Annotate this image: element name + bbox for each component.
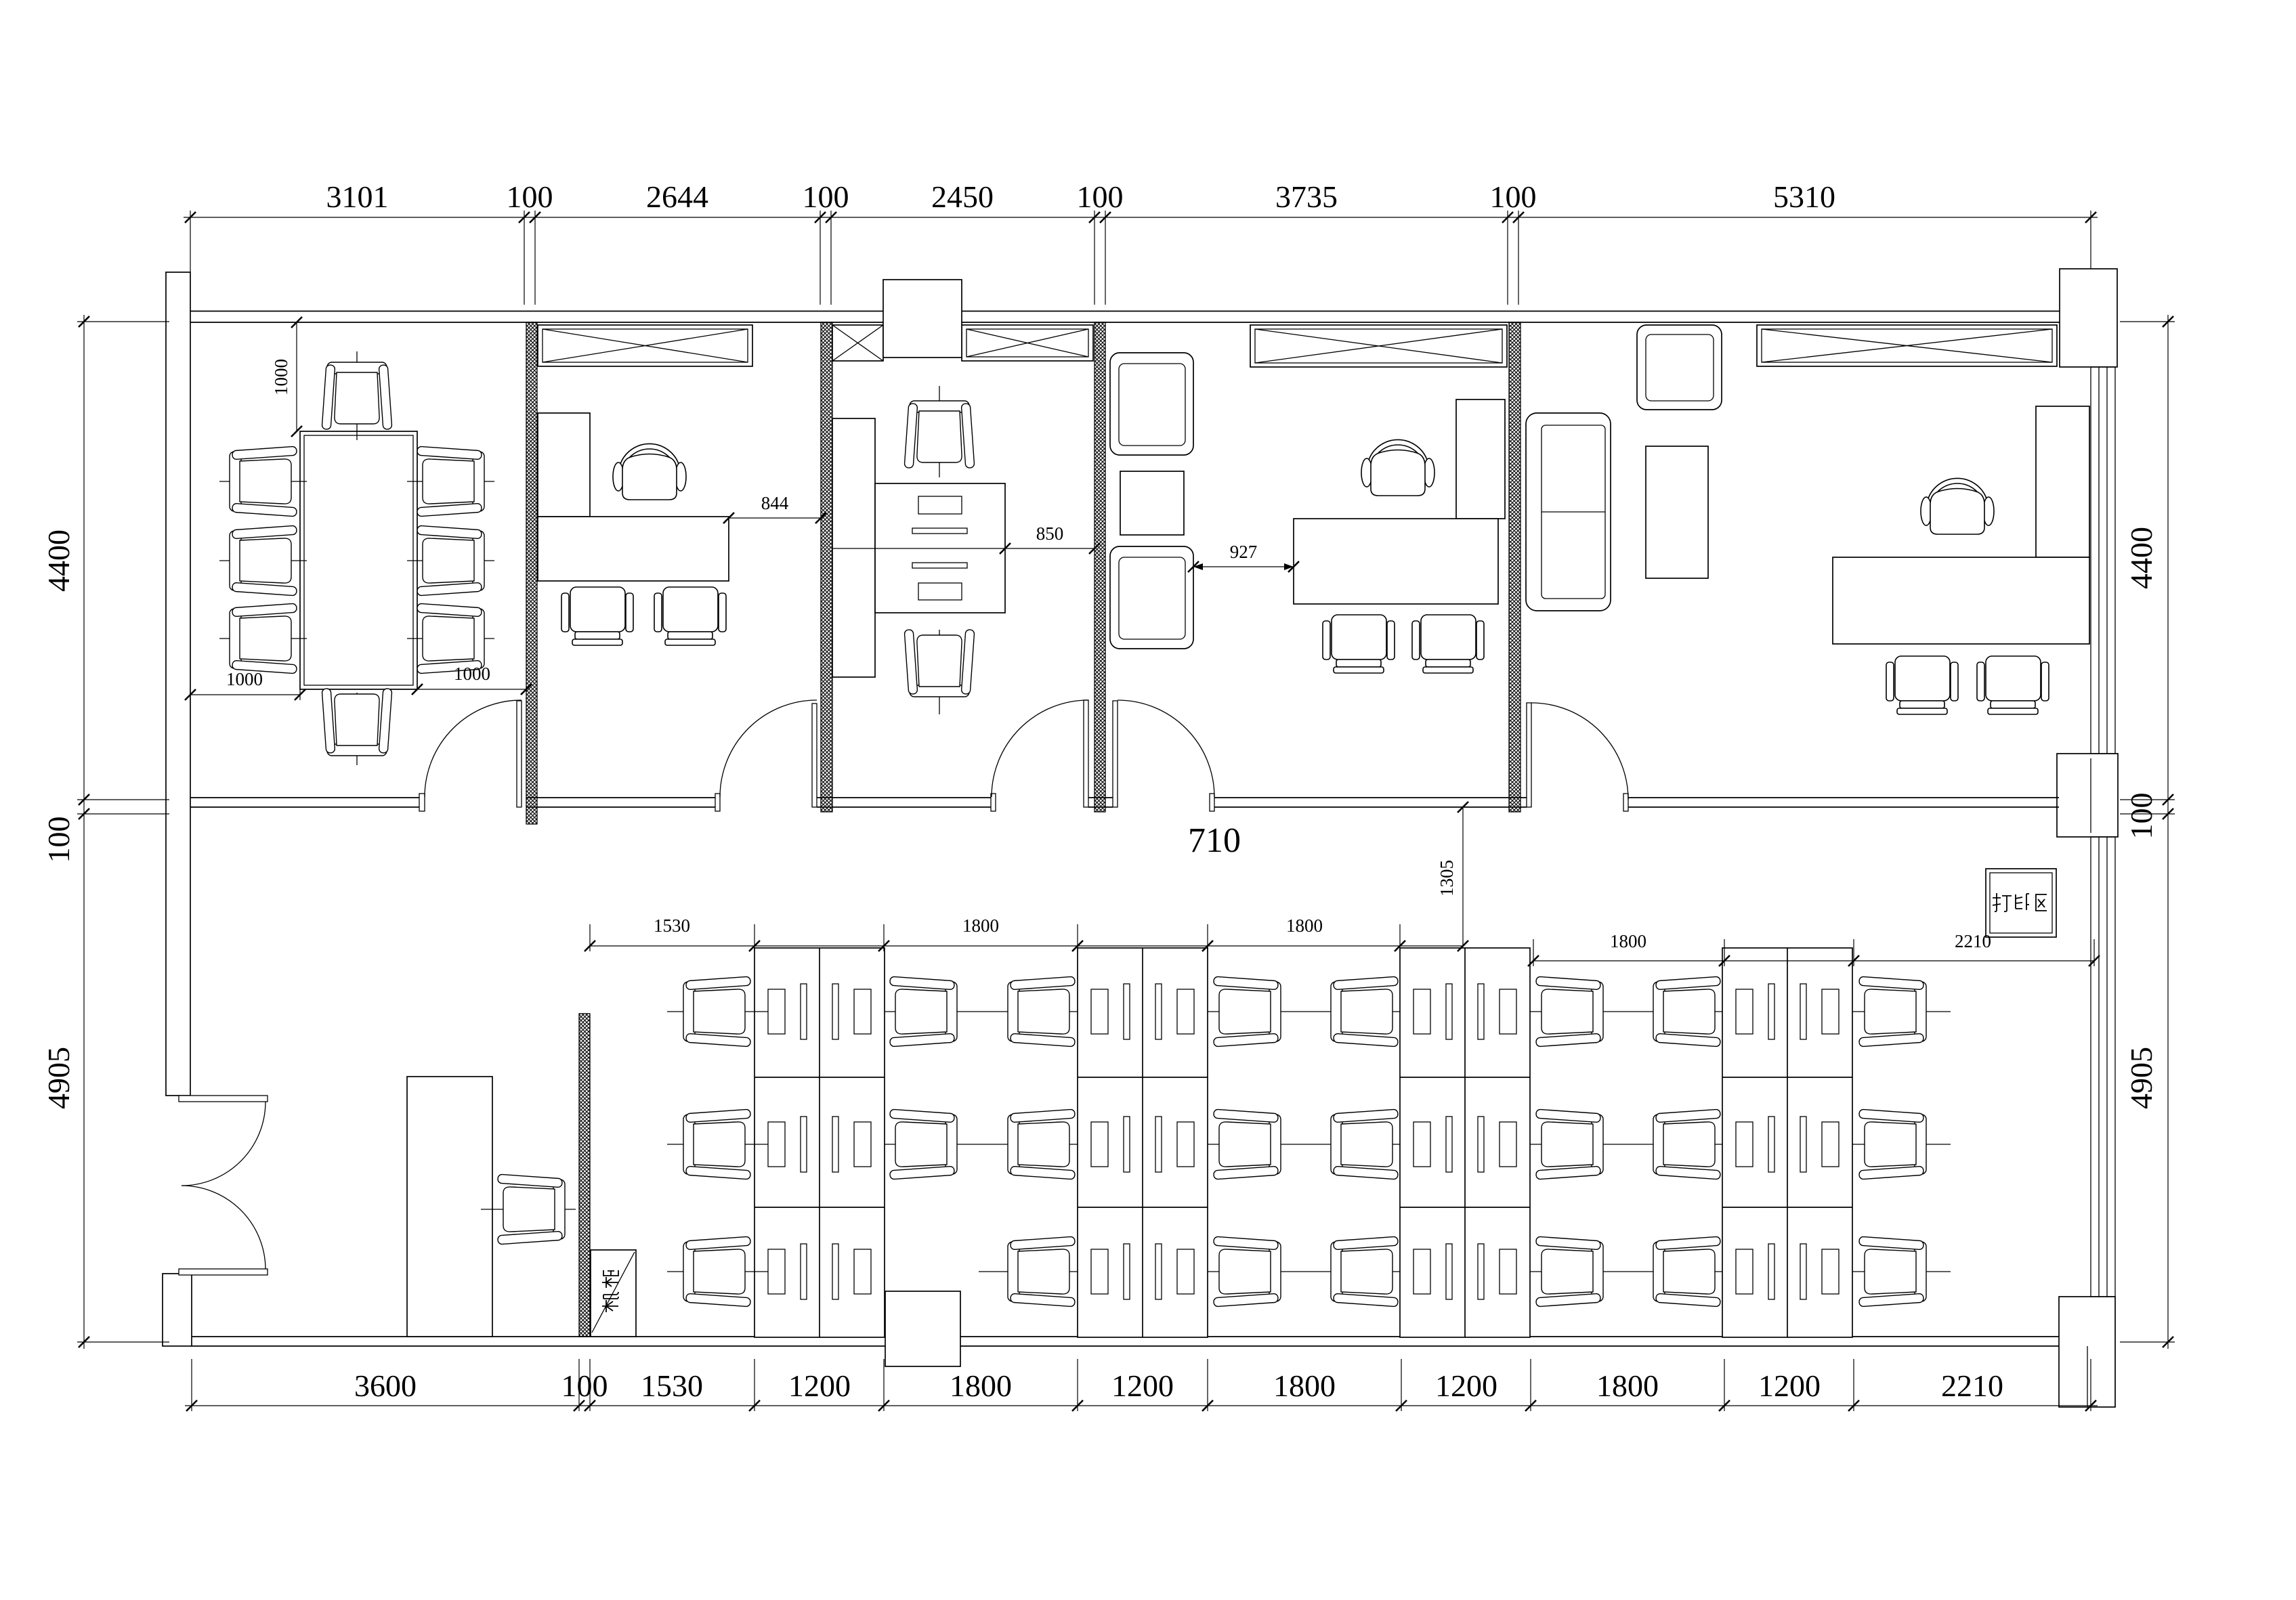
svg-text:1200: 1200 (1758, 1368, 1821, 1403)
svg-text:2210: 2210 (1955, 931, 1991, 951)
svg-text:844: 844 (761, 493, 789, 513)
svg-text:3600: 3600 (354, 1368, 417, 1403)
svg-text:1800: 1800 (950, 1368, 1012, 1403)
svg-text:3101: 3101 (326, 179, 389, 214)
svg-text:100: 100 (1490, 179, 1537, 214)
svg-text:2210: 2210 (1941, 1368, 2003, 1403)
svg-text:1800: 1800 (1286, 915, 1323, 936)
svg-text:100: 100 (803, 179, 849, 214)
svg-text:710: 710 (1188, 821, 1241, 860)
svg-text:1530: 1530 (654, 915, 690, 936)
svg-text:1000: 1000 (454, 664, 490, 684)
svg-text:1200: 1200 (788, 1368, 851, 1403)
svg-text:4905: 4905 (41, 1047, 76, 1109)
svg-text:2450: 2450 (931, 179, 994, 214)
svg-text:4400: 4400 (41, 529, 76, 592)
svg-text:1530: 1530 (641, 1368, 703, 1403)
svg-text:100: 100 (561, 1368, 608, 1403)
svg-text:2644: 2644 (646, 179, 708, 214)
svg-text:1800: 1800 (1273, 1368, 1336, 1403)
svg-text:100: 100 (1077, 179, 1124, 214)
svg-text:1800: 1800 (962, 915, 999, 936)
svg-text:4905: 4905 (2124, 1047, 2159, 1109)
svg-text:1800: 1800 (1610, 931, 1646, 951)
svg-text:1000: 1000 (226, 669, 263, 689)
svg-text:1200: 1200 (1111, 1368, 1174, 1403)
svg-text:3735: 3735 (1275, 179, 1338, 214)
svg-text:1800: 1800 (1596, 1368, 1659, 1403)
svg-text:100: 100 (507, 179, 553, 214)
svg-text:100: 100 (2124, 793, 2159, 840)
svg-text:850: 850 (1036, 523, 1064, 544)
svg-text:927: 927 (1230, 542, 1258, 562)
svg-text:1305: 1305 (1437, 860, 1457, 896)
svg-text:100: 100 (41, 817, 76, 863)
svg-text:4400: 4400 (2124, 527, 2159, 589)
svg-text:1200: 1200 (1435, 1368, 1497, 1403)
svg-text:1000: 1000 (271, 359, 291, 395)
svg-text:5310: 5310 (1773, 179, 1835, 214)
